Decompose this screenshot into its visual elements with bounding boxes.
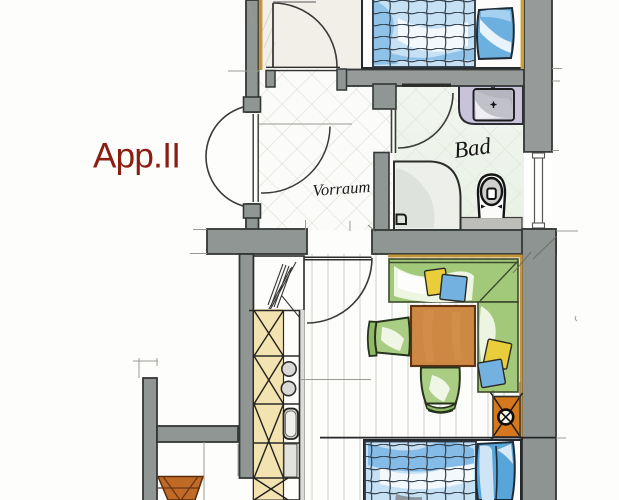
- svg-text:Vorraum: Vorraum: [312, 177, 371, 200]
- svg-text:Bad: Bad: [452, 133, 493, 163]
- svg-text:App.II: App.II: [93, 137, 180, 176]
